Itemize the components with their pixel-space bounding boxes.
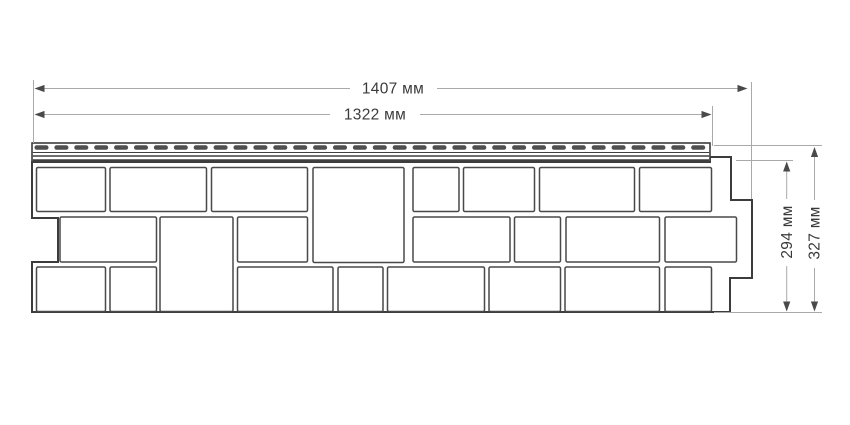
nail-slot — [293, 145, 307, 150]
stone-block — [212, 168, 308, 212]
stone-block — [110, 267, 157, 312]
nail-slot — [35, 145, 49, 150]
nail-slot — [273, 145, 287, 150]
stone-block — [60, 217, 157, 262]
nail-slot — [114, 145, 128, 150]
dimension-arrow — [783, 162, 790, 172]
nail-slot — [512, 145, 526, 150]
nail-slot — [154, 145, 168, 150]
nail-slot — [592, 145, 606, 150]
nail-slot — [532, 145, 546, 150]
nail-slot — [353, 145, 367, 150]
stone-block — [37, 168, 106, 212]
dimension-arrow — [35, 85, 45, 92]
nail-slot — [253, 145, 267, 150]
stone-block — [110, 168, 207, 212]
nail-slot — [313, 145, 327, 150]
stone-block — [313, 168, 404, 263]
stone-block — [566, 217, 660, 262]
stone-block — [515, 217, 561, 262]
stone-block — [37, 267, 106, 312]
stone-block — [338, 267, 383, 312]
nail-slot — [393, 145, 407, 150]
nail-slot — [74, 145, 88, 150]
nail-slot — [214, 145, 228, 150]
nail-slot — [671, 145, 685, 150]
stone-block — [413, 168, 459, 212]
stone-block — [160, 217, 233, 312]
dim-label-height-total: 327 мм — [807, 206, 824, 259]
dimension-arrow — [35, 111, 45, 118]
nail-slot — [552, 145, 566, 150]
nail-slot — [472, 145, 486, 150]
nail-slot — [452, 145, 466, 150]
nail-slot — [433, 145, 447, 150]
stone-block — [565, 267, 660, 312]
dim-label-height-nominal: 294 мм — [779, 205, 796, 258]
nail-slot — [572, 145, 586, 150]
stone-block — [464, 168, 535, 212]
dimension-arrow — [811, 147, 818, 157]
stone-block — [540, 168, 635, 212]
nail-slot — [54, 145, 68, 150]
dimension-arrow — [702, 111, 712, 118]
nail-slot — [94, 145, 108, 150]
stone-block — [665, 267, 712, 312]
stone-block — [238, 217, 308, 262]
nail-slot — [492, 145, 506, 150]
nail-slot — [134, 145, 148, 150]
panel-dimension-diagram: 1407 мм 1322 мм 294 мм 327 мм — [0, 0, 850, 425]
stone-block — [489, 267, 561, 312]
nail-slot — [413, 145, 427, 150]
stone-block — [640, 168, 712, 212]
nail-slot — [612, 145, 626, 150]
dimension-arrow — [783, 302, 790, 312]
nail-slot — [174, 145, 188, 150]
nail-slot — [651, 145, 665, 150]
nail-slot — [333, 145, 347, 150]
dimension-arrow — [738, 85, 748, 92]
stone-block — [388, 267, 485, 312]
nail-slot — [234, 145, 248, 150]
stone-block — [665, 217, 737, 262]
nail-slot — [373, 145, 387, 150]
stone-block — [238, 267, 334, 312]
stone-block — [413, 217, 510, 262]
nail-slot — [194, 145, 208, 150]
nail-slot — [632, 145, 646, 150]
diagram-canvas: 1407 мм 1322 мм 294 мм 327 мм — [0, 0, 850, 425]
nail-slot — [691, 145, 705, 150]
dimension-arrow — [811, 302, 818, 312]
dim-label-width-total: 1407 мм — [362, 81, 424, 98]
dim-label-width-nominal: 1322 мм — [344, 107, 406, 124]
facade-panel — [32, 143, 752, 312]
